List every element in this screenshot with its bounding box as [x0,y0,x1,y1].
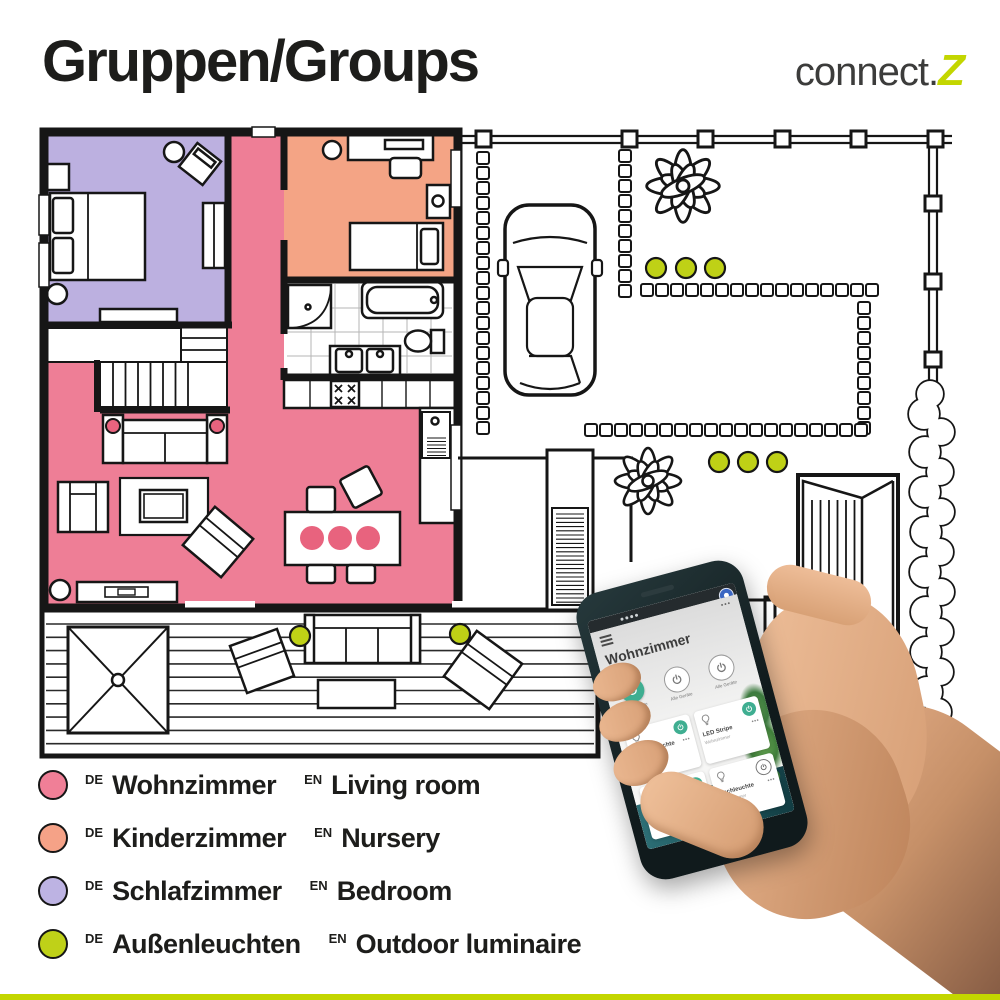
power-button[interactable] [661,664,693,696]
legend-item-kinderzimmer: DE Kinderzimmer EN Nursery [38,821,581,855]
brand-logo: connect.Z [795,46,964,96]
legend-swatch-outdoor [38,929,68,959]
page: Gruppen/Groups connect.Z [0,0,1000,1000]
outdoor-light-dot [767,452,787,472]
tile-more-button[interactable]: ••• [767,777,776,785]
brand-stripe [0,994,1000,1000]
deck-table [318,680,395,708]
legend-swatch-bedroom [38,876,68,906]
legend-swatch-nursery [38,823,68,853]
plant-flower [647,150,720,223]
brand-logo-z: Z [938,46,964,95]
outdoor-light-dot [738,452,758,472]
power-toggle[interactable] [671,719,688,736]
tile-more-button[interactable]: ••• [751,718,760,726]
outdoor-light-dot [450,624,470,644]
outdoor-light-dot [290,626,310,646]
legend: DE Wohnzimmer EN Living room DE Kinderzi… [38,768,581,980]
plant-flower [615,448,681,514]
bulb-icon [713,769,729,785]
deck [42,610,598,756]
deck-sofa [305,615,420,663]
legend-item-aussenleuchten: DE Außenleuchten EN Outdoor luminaire [38,927,581,961]
tile-more-button[interactable]: ••• [682,736,691,744]
outdoor-light-dot [676,258,696,278]
legend-swatch-living-room [38,770,68,800]
outdoor-light-dot [709,452,729,472]
brand-logo-text: connect. [795,50,938,94]
outdoor-light-dot [646,258,666,278]
more-menu-button[interactable]: ••• [721,602,732,609]
phone-speaker [640,584,674,598]
stone-path [477,152,489,434]
page-title: Gruppen/Groups [42,28,478,95]
power-button[interactable] [706,652,738,684]
bulb-icon [698,712,714,728]
power-toggle[interactable] [740,700,757,717]
power-toggle[interactable] [754,757,774,777]
car [498,205,602,395]
garden-bench [547,450,593,610]
legend-item-wohnzimmer: DE Wohnzimmer EN Living room [38,768,581,802]
legend-item-schlafzimmer: DE Schlafzimmer EN Bedroom [38,874,581,908]
outdoor-light-dot [705,258,725,278]
